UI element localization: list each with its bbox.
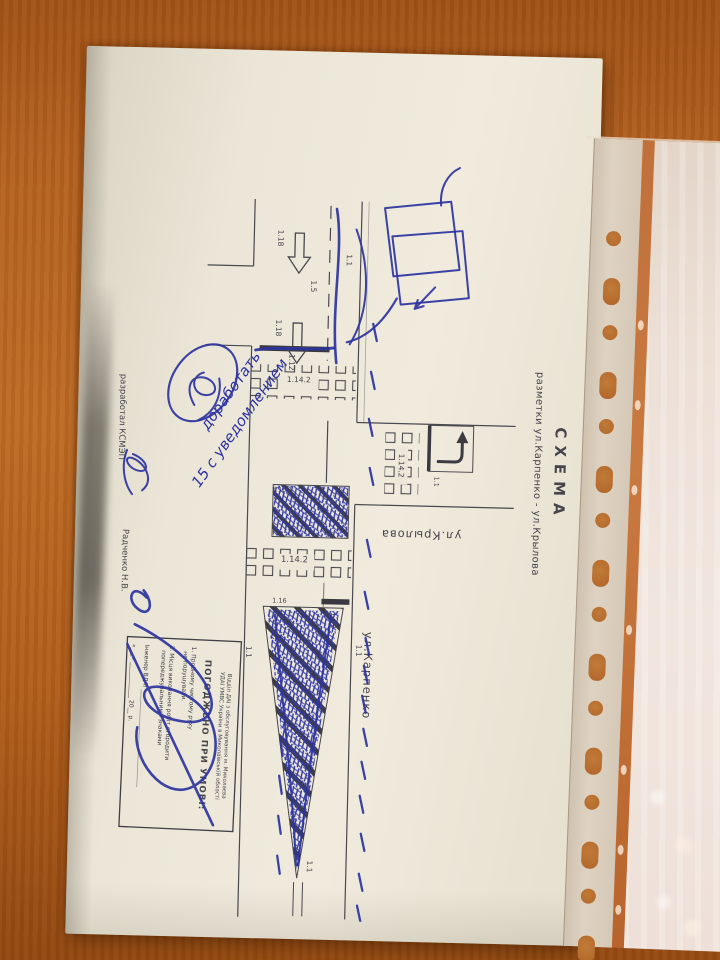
punch-hole bbox=[603, 278, 621, 306]
lane-dashed-line bbox=[327, 206, 331, 361]
marking-label: 1.14.2 bbox=[396, 454, 406, 478]
punch-hole bbox=[595, 466, 613, 494]
scheme-rotated-layer: СХЕМА разметки ул.Карпенко - ул.Крылова bbox=[74, 65, 595, 927]
pen-stroke bbox=[333, 209, 340, 363]
punch-hole bbox=[581, 841, 599, 869]
photo-scene: СХЕМА разметки ул.Карпенко - ул.Крылова bbox=[0, 0, 720, 960]
turn-arrow-icon bbox=[437, 431, 469, 463]
pen-dash bbox=[361, 762, 365, 779]
marking-label: 1.5 bbox=[309, 280, 318, 292]
sleeve-glint bbox=[638, 320, 644, 330]
sign-inset-box bbox=[429, 425, 474, 472]
punch-hole bbox=[588, 654, 606, 682]
punch-hole bbox=[581, 888, 597, 904]
punch-hole bbox=[599, 419, 615, 435]
pen-dash bbox=[363, 729, 367, 746]
road-scheme: СХЕМА разметки ул.Карпенко - ул.Крылова bbox=[74, 65, 595, 927]
marking-label: 1.18 bbox=[274, 319, 283, 336]
pen-dash bbox=[369, 468, 373, 485]
sleeve-glint bbox=[635, 400, 641, 410]
marking-label: 1.1 bbox=[345, 254, 354, 266]
punch-hole bbox=[577, 935, 595, 960]
punch-hole bbox=[584, 747, 602, 775]
pen-dash bbox=[367, 540, 371, 557]
road-lines bbox=[192, 198, 521, 923]
pen-dash bbox=[277, 856, 280, 874]
punch-hole bbox=[599, 372, 617, 400]
punch-hole bbox=[592, 560, 610, 588]
pen-dash bbox=[358, 874, 362, 891]
pen-dash bbox=[368, 419, 372, 436]
stop-line-marking bbox=[321, 599, 349, 605]
pen-dash bbox=[364, 592, 368, 609]
pen-dash bbox=[357, 906, 361, 923]
sleeve-glint bbox=[626, 625, 632, 635]
street-name-krylova: ул.Крылова bbox=[381, 527, 462, 543]
punch-hole bbox=[602, 325, 618, 341]
punch-hole bbox=[591, 607, 607, 623]
punch-hole bbox=[606, 231, 622, 247]
pen-scribble-fill bbox=[261, 609, 339, 871]
pen-dash bbox=[278, 816, 281, 834]
sleeve-glint bbox=[617, 845, 623, 855]
pen-dash bbox=[371, 372, 375, 389]
lane-arrow-marking bbox=[288, 233, 311, 274]
marking-label: 1.1 bbox=[305, 860, 314, 872]
sleeve-glint bbox=[621, 765, 627, 775]
scheme-title: СХЕМА bbox=[549, 427, 569, 522]
sleeve-crinkle bbox=[637, 759, 716, 952]
marking-label: 1.16 bbox=[272, 597, 287, 605]
marking-label: 1.1 bbox=[432, 476, 440, 487]
signature-scribble bbox=[123, 450, 149, 495]
sleeve-glint bbox=[631, 485, 637, 495]
scheme-subtitle: разметки ул.Карпенко - ул.Крылова bbox=[529, 372, 545, 576]
paper-sheet: СХЕМА разметки ул.Карпенко - ул.Крылова bbox=[65, 46, 603, 946]
developer-name: Радченко Н.В. bbox=[119, 529, 131, 592]
pen-scribble-fill bbox=[273, 486, 348, 538]
pen-dash bbox=[279, 776, 282, 794]
marking-label: 1.14.2 bbox=[287, 375, 311, 385]
marking-label: 1.14.2 bbox=[281, 555, 308, 566]
pen-stroke bbox=[441, 168, 460, 206]
punch-hole bbox=[584, 794, 600, 810]
pen-dash bbox=[360, 834, 364, 851]
punch-hole bbox=[588, 701, 604, 717]
pen-dash bbox=[359, 796, 363, 813]
sleeve-glint bbox=[615, 905, 621, 915]
pen-stroke bbox=[350, 229, 368, 344]
punch-hole bbox=[595, 513, 611, 529]
marking-label: 1.1 bbox=[244, 646, 253, 658]
developer-label: разработал КСМЭП bbox=[116, 374, 128, 460]
marking-label: 1.18 bbox=[276, 230, 285, 247]
pen-arrow bbox=[415, 287, 436, 309]
